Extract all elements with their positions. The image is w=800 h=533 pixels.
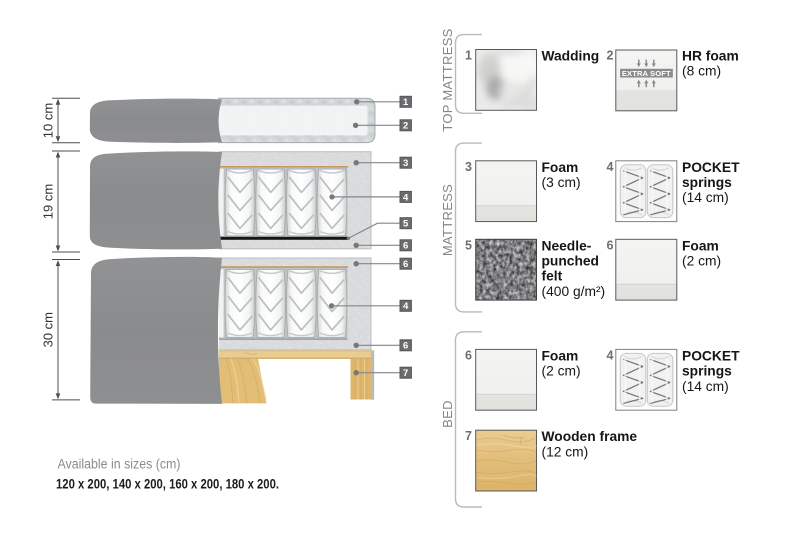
svg-text:3: 3 bbox=[403, 158, 408, 169]
svg-text:springs: springs bbox=[682, 364, 732, 379]
svg-text:2: 2 bbox=[607, 49, 614, 63]
svg-text:4: 4 bbox=[403, 301, 409, 312]
svg-text:120 x 200, 140 x 200, 160 x 20: 120 x 200, 140 x 200, 160 x 200, 180 x 2… bbox=[56, 476, 279, 491]
svg-text:HR foam: HR foam bbox=[682, 49, 739, 64]
svg-text:(3 cm): (3 cm) bbox=[542, 175, 581, 190]
svg-text:(14 cm): (14 cm) bbox=[682, 379, 729, 394]
svg-text:6: 6 bbox=[465, 348, 472, 362]
svg-text:19 cm: 19 cm bbox=[41, 184, 56, 219]
svg-text:4: 4 bbox=[607, 160, 614, 174]
svg-text:(14 cm): (14 cm) bbox=[682, 190, 729, 205]
svg-text:4: 4 bbox=[607, 348, 614, 362]
svg-text:5: 5 bbox=[465, 238, 472, 252]
svg-text:Available in sizes (cm): Available in sizes (cm) bbox=[58, 457, 181, 472]
svg-text:EXTRA SOFT: EXTRA SOFT bbox=[622, 69, 671, 78]
svg-text:1: 1 bbox=[465, 49, 472, 63]
svg-text:punched: punched bbox=[542, 254, 600, 269]
svg-text:6: 6 bbox=[403, 259, 408, 270]
svg-text:(2 cm): (2 cm) bbox=[682, 254, 721, 269]
svg-text:Needle-: Needle- bbox=[542, 238, 592, 253]
svg-text:1: 1 bbox=[403, 97, 409, 108]
svg-text:springs: springs bbox=[682, 175, 732, 190]
svg-text:Wooden frame: Wooden frame bbox=[542, 429, 638, 444]
svg-text:7: 7 bbox=[403, 368, 408, 379]
svg-text:TOP MATTRESS: TOP MATTRESS bbox=[440, 28, 455, 131]
svg-text:3: 3 bbox=[465, 160, 472, 174]
svg-text:30 cm: 30 cm bbox=[41, 312, 56, 347]
svg-text:Foam: Foam bbox=[542, 348, 579, 363]
svg-text:6: 6 bbox=[403, 341, 408, 352]
svg-text:6: 6 bbox=[403, 241, 408, 252]
svg-text:BED: BED bbox=[440, 400, 455, 428]
svg-text:POCKET: POCKET bbox=[682, 160, 740, 175]
svg-text:(400 g/m²): (400 g/m²) bbox=[542, 284, 606, 299]
svg-text:Wadding: Wadding bbox=[542, 49, 600, 64]
svg-text:MATTRESS: MATTRESS bbox=[440, 184, 455, 256]
svg-text:4: 4 bbox=[403, 192, 409, 203]
svg-text:7: 7 bbox=[465, 429, 472, 443]
svg-text:(8 cm): (8 cm) bbox=[682, 64, 721, 79]
svg-text:(2 cm): (2 cm) bbox=[542, 364, 581, 379]
svg-text:Foam: Foam bbox=[682, 238, 719, 253]
svg-text:(12 cm): (12 cm) bbox=[542, 444, 589, 459]
svg-text:5: 5 bbox=[403, 219, 409, 230]
svg-text:2: 2 bbox=[403, 121, 408, 132]
svg-text:felt: felt bbox=[542, 269, 563, 284]
svg-text:10 cm: 10 cm bbox=[41, 103, 56, 138]
svg-text:Foam: Foam bbox=[542, 160, 579, 175]
svg-text:6: 6 bbox=[607, 238, 614, 252]
svg-text:POCKET: POCKET bbox=[682, 348, 740, 363]
